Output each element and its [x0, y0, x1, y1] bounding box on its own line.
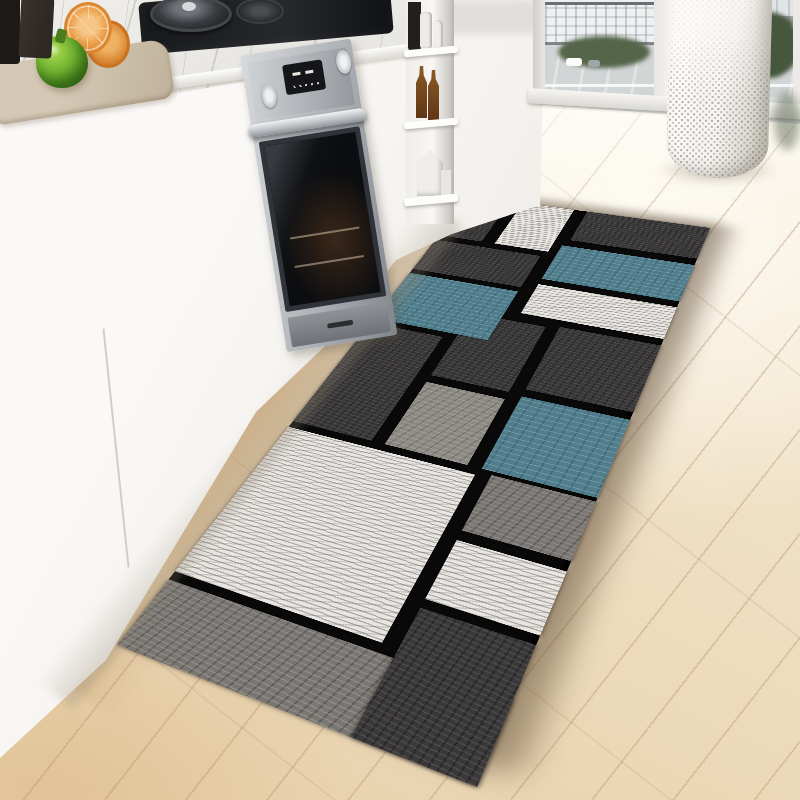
car — [566, 58, 582, 66]
shelf — [404, 194, 458, 207]
basket-weave-texture — [666, 0, 773, 179]
oven-door — [259, 126, 387, 312]
woven-basket — [666, 0, 773, 179]
plant-blur — [774, 92, 800, 150]
white-jar — [420, 12, 432, 48]
oven-knob — [260, 83, 279, 109]
dark-bottle — [0, 0, 20, 64]
wine-bottle — [428, 70, 439, 120]
wine-bottle — [416, 66, 427, 118]
pan-lid-knob — [182, 2, 196, 11]
white-jar — [433, 20, 443, 48]
oven-knob — [334, 49, 353, 75]
oven-control-panel — [247, 47, 355, 120]
shelf — [404, 118, 458, 130]
display-segment — [292, 72, 300, 76]
oven-display — [282, 59, 326, 95]
oven-vent — [327, 320, 353, 329]
decor-box — [441, 170, 451, 196]
oven-door-glass — [264, 132, 380, 306]
kitchen-scene — [0, 0, 800, 800]
display-segment — [305, 70, 313, 74]
display-buttons — [293, 82, 319, 88]
house-decor — [417, 150, 443, 196]
pepper-stem — [54, 28, 67, 44]
pepper-grinder — [18, 0, 54, 59]
open-shelf-niche — [406, 0, 454, 224]
car — [588, 60, 600, 67]
